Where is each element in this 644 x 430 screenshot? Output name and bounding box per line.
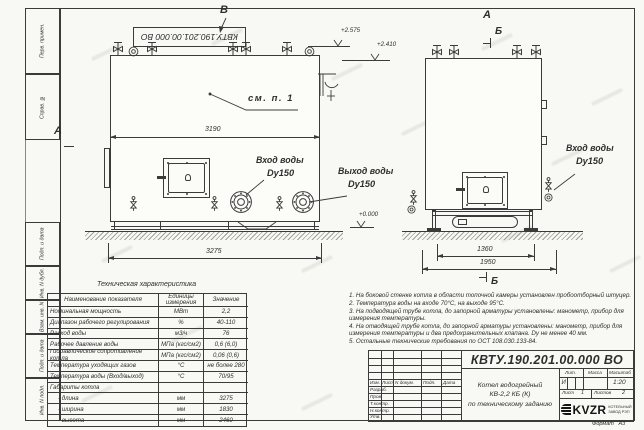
- table-cell: [204, 383, 248, 394]
- row-tkontr: Т.контр.: [370, 402, 389, 407]
- table-cell: Рабочее давление воды: [48, 339, 159, 350]
- table-cell: 0,6 (6,0): [204, 339, 248, 350]
- note-line: 2. Температура воды на входе 70°С, на вы…: [349, 300, 635, 307]
- product-title-line1: Котел водогрейный: [478, 381, 543, 390]
- title-block-line: [369, 414, 461, 415]
- table-cell: Габариты котла: [48, 383, 159, 394]
- drawing-sheet: Перв. примен. Справ. № Подп. и дата Инв.…: [0, 0, 644, 430]
- doc-number: КВТУ.190.201.00.000 ВО: [461, 351, 633, 369]
- note-line: 5. Остальные технические требования по О…: [349, 338, 635, 345]
- title-block-line: [583, 369, 584, 389]
- table-cell: МПа (кгс/см2): [159, 350, 204, 361]
- product-title-line2: КВ-2,2 КБ (К): [490, 390, 531, 399]
- table-cell: Температура уходящих газов: [48, 361, 159, 372]
- table-cell: - длина: [48, 393, 159, 404]
- title-block-line: [369, 358, 461, 359]
- row-utv: Утв.: [370, 415, 381, 420]
- format-value: А3: [618, 421, 625, 427]
- title-block-line: [369, 365, 461, 366]
- mass-label: Масса: [588, 371, 602, 376]
- sheet-label: Лист: [562, 391, 574, 396]
- sheets-value: 2: [622, 391, 625, 397]
- table-cell: Диапазон рабочего регулирования: [48, 318, 159, 329]
- col-ndokum: N докум.: [395, 381, 414, 386]
- table-title: Техническая характеристика: [97, 281, 196, 288]
- table-cell: 70/95: [204, 372, 248, 383]
- table-cell: °С: [159, 361, 204, 372]
- row-prov: Пров.: [370, 395, 382, 400]
- row-nkontr: Н.контр.: [370, 409, 390, 414]
- table-cell: 2,2: [204, 307, 248, 318]
- lit-label: Лит.: [565, 371, 576, 376]
- note-line: 4. На отводящей трубе котла, до запорной…: [349, 323, 635, 338]
- table-cell: Расход воды: [48, 329, 159, 340]
- table-cell: Гидравлическое сопротивление котла: [48, 350, 159, 361]
- scale-value: 1:20: [613, 380, 626, 387]
- title-block: КВТУ.190.201.00.000 ВО Изм. Лист N докум…: [368, 350, 634, 422]
- col-list: Лист: [382, 381, 394, 386]
- table-cell: МПа (кгс/см2): [159, 339, 204, 350]
- tech-table: Наименование показателя Единицы измерени…: [47, 293, 247, 427]
- col-data: Дата: [443, 381, 455, 386]
- logo-area: KVZR КОТЕЛЬНЫЙ ЗАВОД РЭП: [559, 398, 633, 421]
- product-title: Котел водогрейный КВ-2,2 КБ (К) по техни…: [462, 370, 558, 420]
- note-line: 3. На подводящей трубе котла, до запорно…: [349, 308, 635, 323]
- title-block-line: [591, 389, 592, 398]
- kvzr-logo-text: KVZR: [573, 403, 607, 417]
- technical-notes: 1. На боковой стенке котла в области топ…: [349, 292, 635, 346]
- format-note: Формат А3: [592, 422, 625, 428]
- table-cell: 3275: [204, 393, 248, 404]
- table-cell: 40-110: [204, 318, 248, 329]
- table-cell: м3/ч: [159, 329, 204, 340]
- table-cell: Номинальная мощность: [48, 307, 159, 318]
- table-cell: МВт: [159, 307, 204, 318]
- kvzr-logo-icon: [561, 404, 571, 415]
- table-header: Наименование показателя: [48, 294, 159, 307]
- product-title-line3: по техническому заданию: [468, 400, 552, 409]
- table-header: Единицы измерения: [159, 294, 204, 307]
- table-cell: - высота: [48, 415, 159, 426]
- sheet-value: 1: [581, 391, 584, 397]
- col-podp: Подп.: [423, 381, 435, 386]
- table-cell: [159, 383, 204, 394]
- note-line: 1. На боковой стенке котла в области топ…: [349, 292, 635, 299]
- table-cell: мм: [159, 415, 204, 426]
- table-cell: 2460: [204, 415, 248, 426]
- row-razrab: Разраб.: [370, 388, 387, 393]
- title-block-line: [369, 393, 461, 394]
- table-cell: °С: [159, 372, 204, 383]
- lit-value: И: [562, 380, 566, 386]
- table-cell: мм: [159, 404, 204, 415]
- title-block-line: [567, 377, 568, 389]
- title-block-line: [369, 372, 461, 373]
- scale-label: Масштаб: [609, 371, 631, 376]
- table-cell: мм: [159, 393, 204, 404]
- table-cell: %: [159, 318, 204, 329]
- table-cell: Температура воды (Вход/выход): [48, 372, 159, 383]
- table-cell: не более 280: [204, 361, 248, 372]
- title-block-line: [575, 377, 576, 389]
- table-cell: 76: [204, 329, 248, 340]
- sheets-label: Листов: [594, 391, 611, 396]
- col-izm: Изм.: [370, 381, 380, 386]
- title-block-line: [559, 377, 633, 378]
- table-cell: 0,06 (0,6): [204, 350, 248, 361]
- format-label: Формат: [592, 421, 614, 427]
- table-header: Значение: [204, 294, 248, 307]
- table-cell: 1830: [204, 404, 248, 415]
- logo-subtitle-2: ЗАВОД РЭП: [608, 410, 631, 414]
- title-block-line: [607, 369, 608, 389]
- table-cell: - ширина: [48, 404, 159, 415]
